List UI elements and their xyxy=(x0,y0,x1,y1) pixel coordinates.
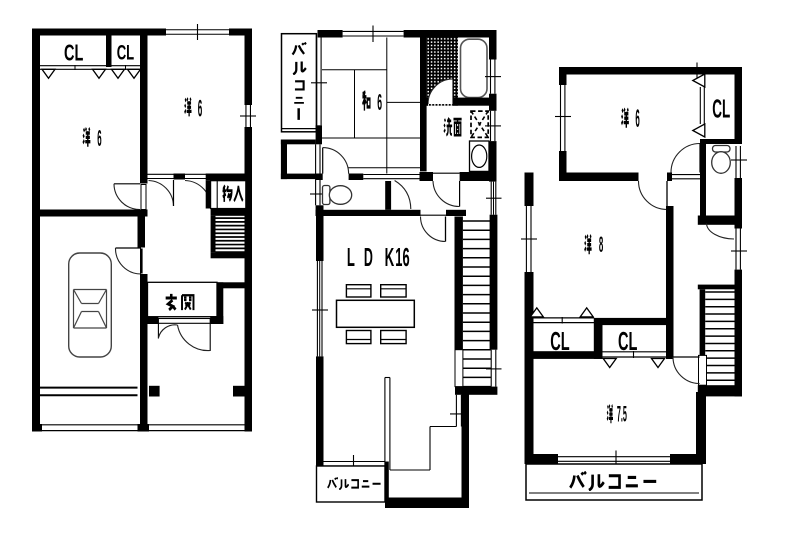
svg-text:CL: CL xyxy=(117,40,135,64)
svg-text:CL: CL xyxy=(64,39,83,65)
svg-text:6: 6 xyxy=(198,96,203,123)
svg-text:K: K xyxy=(385,244,395,272)
svg-text:CL: CL xyxy=(712,94,730,124)
svg-text:8: 8 xyxy=(599,232,603,257)
svg-text:6: 6 xyxy=(377,89,382,115)
svg-text:6: 6 xyxy=(635,105,639,133)
svg-text:L: L xyxy=(347,244,355,272)
svg-text:D: D xyxy=(364,244,373,272)
svg-text:CL: CL xyxy=(618,326,637,356)
svg-text:16: 16 xyxy=(395,244,409,272)
svg-text:7.5: 7.5 xyxy=(617,402,627,427)
svg-text:6: 6 xyxy=(97,125,101,151)
svg-text:CL: CL xyxy=(550,326,569,356)
